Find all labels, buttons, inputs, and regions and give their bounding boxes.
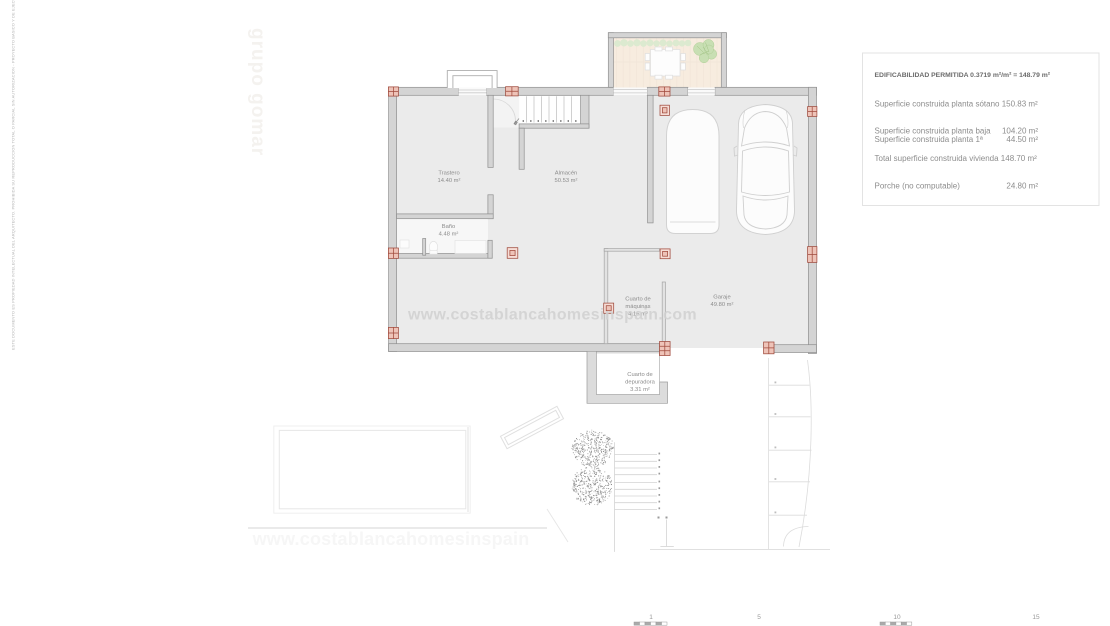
svg-text:Trastero: Trastero [438, 171, 459, 177]
svg-text:www.costablancahomesinspain.co: www.costablancahomesinspain.com [407, 307, 697, 324]
svg-text:grupo gomar: grupo gomar [247, 28, 268, 156]
svg-text:104.20 m²: 104.20 m² [1002, 127, 1038, 136]
svg-text:EDIFICABILIDAD PERMITIDA 0.371: EDIFICABILIDAD PERMITIDA 0.3719 m²/m² = … [875, 72, 1051, 79]
svg-text:49.80 m²: 49.80 m² [711, 302, 734, 308]
svg-text:4.48 m²: 4.48 m² [439, 232, 459, 238]
svg-text:3.31 m²: 3.31 m² [630, 387, 650, 393]
svg-text:ESTE DOCUMENTO ES PROPIEDAD IN: ESTE DOCUMENTO ES PROPIEDAD INTELECTUAL … [11, 0, 16, 350]
svg-text:Baño: Baño [442, 224, 456, 230]
svg-text:depuradora: depuradora [625, 380, 655, 386]
svg-text:15: 15 [1032, 614, 1040, 621]
svg-text:Superficie construida planta b: Superficie construida planta baja [875, 127, 992, 136]
svg-text:Cuarto de: Cuarto de [625, 297, 650, 303]
svg-text:Superficie construida planta 1: Superficie construida planta 1ª [875, 135, 983, 144]
svg-text:50.53 m²: 50.53 m² [555, 178, 578, 184]
svg-text:Superficie construida planta s: Superficie construida planta sótano 150.… [875, 100, 1039, 109]
svg-text:24.80 m²: 24.80 m² [1006, 182, 1038, 191]
svg-text:1: 1 [649, 614, 653, 621]
svg-text:10: 10 [893, 614, 901, 621]
svg-text:44.50 m²: 44.50 m² [1006, 135, 1038, 144]
svg-text:14.40 m²: 14.40 m² [438, 178, 461, 184]
svg-text:Almacén: Almacén [555, 171, 578, 177]
svg-text:Garaje: Garaje [713, 295, 730, 301]
svg-text:5: 5 [757, 614, 761, 621]
svg-text:Total superficie construida vi: Total superficie construida vivienda 148… [875, 154, 1038, 163]
svg-text:www.costablancahomesinspain: www.costablancahomesinspain [252, 529, 530, 549]
svg-text:Porche (no computable): Porche (no computable) [875, 182, 961, 191]
svg-text:Cuarto de: Cuarto de [627, 372, 652, 378]
